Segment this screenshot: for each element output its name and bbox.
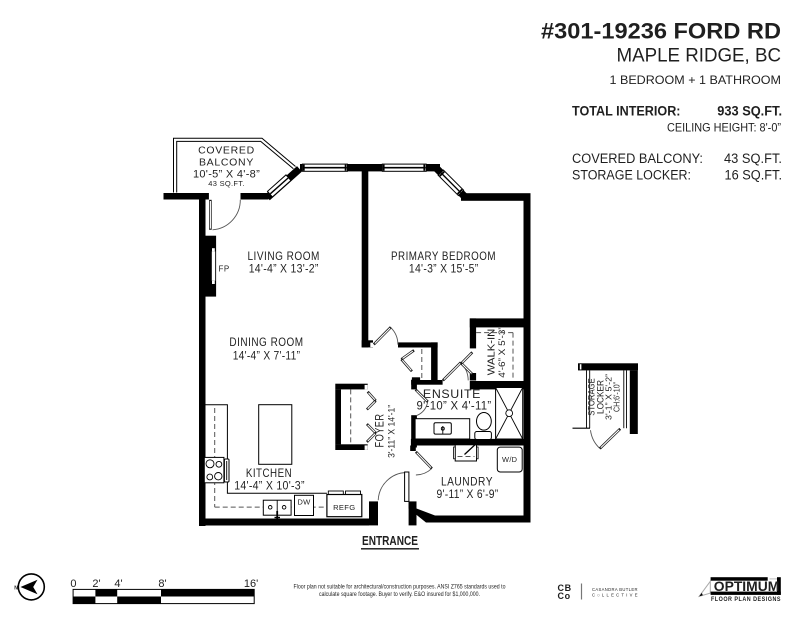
svg-text:N: N [14, 585, 18, 591]
svg-text:DINING ROOM: DINING ROOM [229, 335, 303, 349]
svg-text:14'-3” X 15'-5”: 14'-3” X 15'-5” [409, 263, 479, 275]
svg-text:16': 16' [244, 578, 258, 590]
svg-text:STORAGE LOCKER:: STORAGE LOCKER: [572, 168, 691, 183]
svg-text:OPTIMUM: OPTIMUM [714, 579, 780, 594]
svg-text:14'-4” X 10'-3”: 14'-4” X 10'-3” [234, 481, 305, 493]
svg-text:calculate square footage. Buye: calculate square footage. Buyer to verif… [319, 591, 480, 598]
svg-text:REFG: REFG [333, 503, 355, 512]
svg-text:8': 8' [158, 578, 166, 590]
svg-text:WALK-IN: WALK-IN [485, 329, 497, 376]
svg-text:ENTRANCE: ENTRANCE [362, 534, 418, 548]
svg-text:14'-4” X 7'-11”: 14'-4” X 7'-11” [233, 350, 301, 362]
svg-text:LIVING ROOM: LIVING ROOM [247, 249, 320, 263]
svg-text:933 SQ.FT.: 933 SQ.FT. [717, 104, 782, 119]
svg-text:W/D: W/D [502, 455, 517, 464]
svg-text:CH:6'-10”: CH:6'-10” [611, 382, 621, 412]
svg-text:9'-11” X 6'-9”: 9'-11” X 6'-9” [437, 489, 499, 501]
svg-text:Co: Co [558, 591, 571, 601]
svg-text:Floor plan not suitable for ar: Floor plan not suitable for architectura… [294, 584, 506, 591]
svg-text:3'-11” X 14'-1”: 3'-11” X 14'-1” [387, 405, 397, 458]
svg-text:16 SQ.FT.: 16 SQ.FT. [725, 168, 783, 183]
svg-text:KITCHEN: KITCHEN [246, 466, 292, 480]
svg-text:FP: FP [219, 264, 230, 273]
svg-text:4': 4' [114, 578, 122, 590]
svg-text:MAPLE RIDGE, BC: MAPLE RIDGE, BC [617, 46, 782, 67]
svg-text:DW: DW [297, 498, 311, 507]
svg-text:4'-6” X 5'-3”: 4'-6” X 5'-3” [497, 326, 507, 378]
svg-text:43 SQ.FT.: 43 SQ.FT. [724, 151, 782, 166]
svg-text:COVERED: COVERED [198, 145, 255, 157]
svg-text:BALCONY: BALCONY [199, 156, 254, 168]
svg-text:FLOOR PLAN DESIGNS: FLOOR PLAN DESIGNS [711, 597, 781, 603]
svg-text:43 SQ.FT.: 43 SQ.FT. [208, 179, 244, 188]
svg-text:TOTAL INTERIOR:: TOTAL INTERIOR: [572, 104, 681, 119]
svg-text:14'-4” X 13'-2”: 14'-4” X 13'-2” [249, 263, 319, 275]
svg-text:CASANDRA BUTLER: CASANDRA BUTLER [592, 587, 638, 592]
svg-text:ENSUITE: ENSUITE [423, 387, 481, 401]
svg-text:CEILING HEIGHT: 8'-0”: CEILING HEIGHT: 8'-0” [667, 120, 781, 134]
svg-text:0: 0 [70, 578, 76, 590]
svg-text:1 BEDROOM + 1 BATHROOM: 1 BEDROOM + 1 BATHROOM [610, 73, 782, 87]
svg-text:LAUNDRY: LAUNDRY [441, 474, 493, 488]
svg-text:COVERED BALCONY:: COVERED BALCONY: [572, 151, 703, 166]
svg-text:PRIMARY BEDROOM: PRIMARY BEDROOM [391, 249, 496, 263]
svg-text:2': 2' [92, 578, 100, 590]
svg-text:#301-19236 FORD RD: #301-19236 FORD RD [541, 19, 781, 44]
